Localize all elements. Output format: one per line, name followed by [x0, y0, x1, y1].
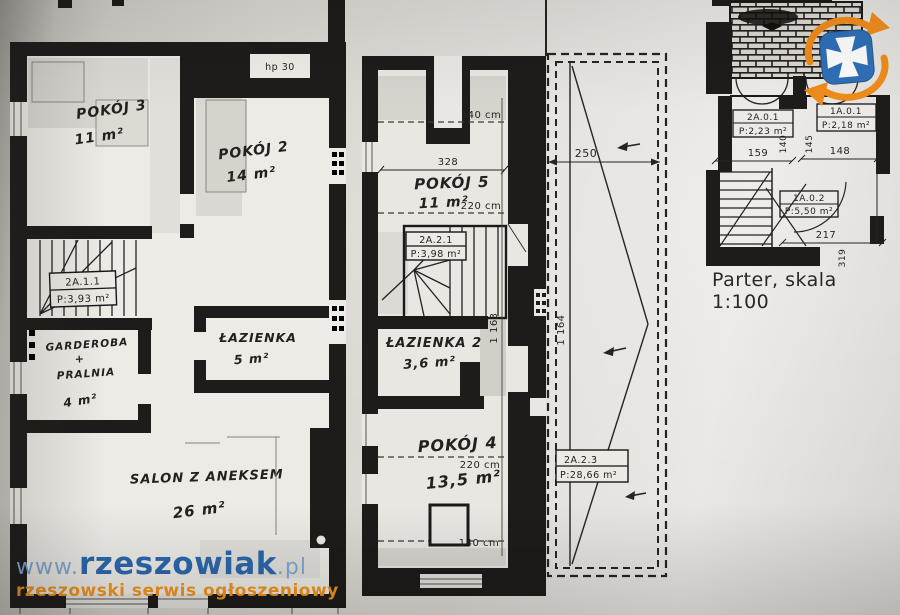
parter-label-r1: 2A.0.1 P:2,23 m²: [733, 110, 793, 137]
parter-label-r3: 1A.0.2 P:5,50 m²: [780, 191, 838, 217]
floorplan-scan-photo: hp 30 2A.1.1 P:3,93 m² POKÓJ 3 11 m² POK…: [0, 0, 900, 615]
room-label-lazienka: ŁAZIENKA: [218, 330, 297, 345]
dim-140: 140: [779, 135, 789, 154]
parter-label-r2: 1A.0.1 P:2,18 m²: [817, 104, 876, 131]
watermark-name: rzeszowiak: [79, 549, 277, 580]
parter-r3-area: P:5,50 m²: [785, 207, 833, 217]
garderoba-line2: +: [74, 352, 85, 366]
terrace-label: 2A.2.3 P:28,66 m²: [556, 450, 628, 482]
watermark-www: www.: [16, 557, 79, 579]
room-area-lazienka: 5 m²: [233, 350, 270, 367]
height-140cm-top: 140 cm: [461, 110, 502, 121]
logo-shield: [819, 29, 875, 85]
height-220cm-pokoj5: 220 cm: [461, 201, 502, 212]
hp30-label: hp 30: [265, 62, 295, 73]
dim-159: 159: [748, 148, 769, 159]
dim-1164: 1 164: [556, 314, 567, 345]
parter-r1-id: 2A.0.1: [747, 113, 779, 123]
dim-328: 328: [438, 157, 459, 168]
chimney-flue-top: [434, 56, 462, 128]
floor2-stairs-id: 2A.2.1: [419, 235, 453, 246]
watermark: www.rzeszowiak.pl rzeszowski serwis ogło…: [16, 549, 339, 600]
dim-1163: 1 163: [489, 312, 500, 343]
dim-217: 217: [816, 230, 837, 241]
height-140cm-bottom: 140 cm: [459, 538, 500, 549]
salon-wall-dot: [317, 536, 326, 545]
watermark-tagline: rzeszowski serwis ogłoszeniowy: [16, 583, 339, 600]
parter-r2-area: P:2,18 m²: [822, 121, 870, 131]
watermark-tld: .pl: [277, 557, 307, 579]
parter-stairs: [718, 168, 772, 247]
dim-145: 145: [805, 135, 815, 154]
floor2-plan: 328 140 cm POKÓJ 5 11 m² 220 cm 2A.2.1 P…: [362, 56, 546, 596]
terrace-area-value: P:28,66 m²: [560, 470, 617, 481]
watermark-url: www.rzeszowiak.pl: [16, 549, 339, 580]
plan-caption: Parter, skala 1:100: [712, 269, 900, 313]
terrace-area: 250 1 164 2A.2.3 P:28,66 m²: [548, 54, 666, 576]
parter-r2-id: 1A.0.1: [830, 107, 862, 117]
terrace-id: 2A.2.3: [564, 455, 598, 466]
floor1-stairs-label: 2A.1.1 P:3,93 m²: [49, 271, 116, 307]
floor1-stairs-area: P:3,93 m²: [57, 293, 110, 306]
room-label-pokoj5: POKÓJ 5: [414, 172, 490, 194]
floor1-plan: hp 30 2A.1.1 P:3,93 m² POKÓJ 3 11 m² POK…: [10, 42, 346, 614]
floor1-stairs-id: 2A.1.1: [65, 276, 100, 288]
dim-148: 148: [830, 146, 851, 157]
dim-250: 250: [575, 147, 598, 160]
floor2-stairs-area: P:3,98 m²: [411, 249, 462, 260]
roof-hatch-smudge: [738, 9, 798, 25]
logo-arrow-top: [866, 12, 890, 36]
dim-319: 319: [838, 249, 848, 268]
room-label-lazienka2: ŁAZIENKA 2: [385, 336, 482, 351]
